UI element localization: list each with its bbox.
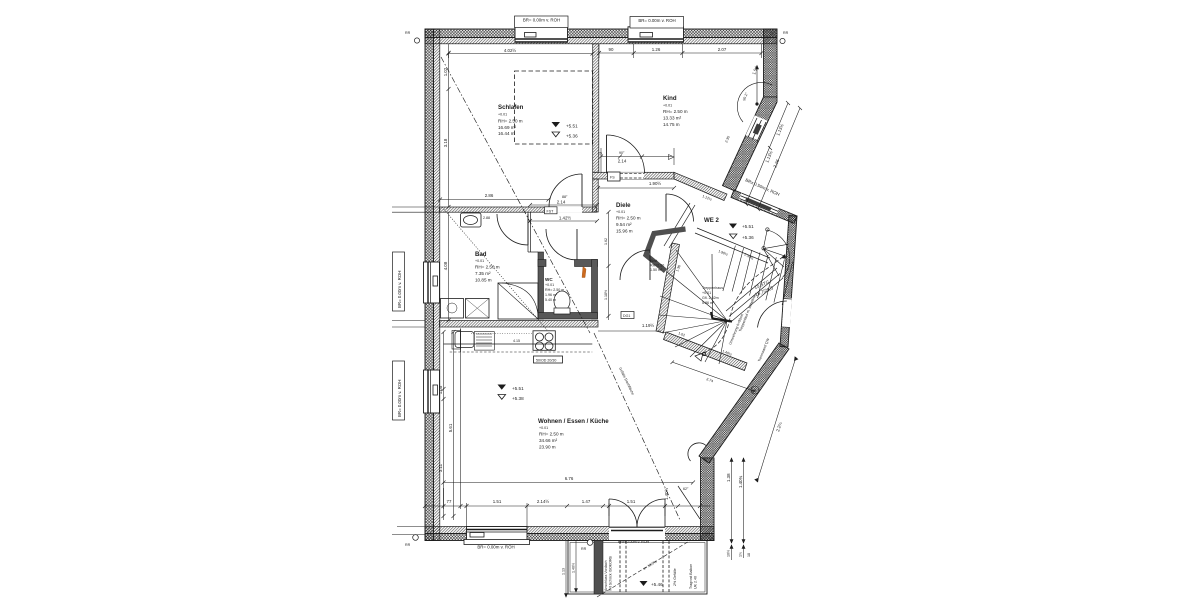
svg-text:7.35 m²: 7.35 m² <box>475 271 491 276</box>
svg-text:FST: FST <box>547 209 555 213</box>
svg-text:14.75 m: 14.75 m <box>663 122 680 127</box>
svg-text:6.76: 6.76 <box>565 476 574 481</box>
svg-text:+5.36: +5.36 <box>566 134 578 139</box>
svg-text:18: 18 <box>747 553 751 557</box>
svg-text:+5.51: +5.51 <box>566 124 578 129</box>
svg-text:BRH 0.00m v. ROH: BRH 0.00m v. ROH <box>618 540 649 544</box>
svg-text:5.86 m²: 5.86 m² <box>702 301 715 305</box>
svg-text:2.86: 2.86 <box>485 193 494 198</box>
svg-text:1.40½: 1.40½ <box>572 563 576 573</box>
svg-text:RR: RR <box>405 31 411 35</box>
svg-text:+5.36: +5.36 <box>742 235 754 240</box>
svg-text:+5.51: +5.51 <box>742 224 754 229</box>
svg-text:10.85 m: 10.85 m <box>475 278 492 283</box>
svg-text:RH= 2.50 m: RH= 2.50 m <box>545 288 564 292</box>
svg-text:Gfl. 2.62m: Gfl. 2.62m <box>702 296 719 300</box>
svg-text:50/OD 20/30: 50/OD 20/30 <box>536 359 556 363</box>
svg-text:RH= 2.50 m: RH= 2.50 m <box>475 265 500 270</box>
svg-text:RH=2.50: RH=2.50 <box>650 264 664 268</box>
svg-text:1.40¾: 1.40¾ <box>738 475 743 488</box>
svg-text:2% Gefälle: 2% Gefälle <box>673 568 677 586</box>
svg-text:1.51: 1.51 <box>493 499 502 504</box>
svg-text:mit Schöck ISOKORB: mit Schöck ISOKORB <box>609 555 613 591</box>
svg-text:RH= 2.50 m: RH= 2.50 m <box>663 109 688 114</box>
svg-text:4.15: 4.15 <box>513 339 520 343</box>
svg-text:1.13: 1.13 <box>562 568 566 575</box>
svg-text:25: 25 <box>598 152 602 156</box>
svg-text:RH= 2.50 m: RH= 2.50 m <box>498 119 523 124</box>
svg-text:Treppenhaus: Treppenhaus <box>702 286 723 290</box>
svg-text:2.14½: 2.14½ <box>537 499 550 504</box>
svg-text:4.02½: 4.02½ <box>504 48 517 53</box>
svg-text:WC: WC <box>545 277 553 282</box>
svg-text:+0.01: +0.01 <box>702 291 711 295</box>
svg-text:2.07: 2.07 <box>718 47 727 52</box>
svg-text:Tragrost Balkon: Tragrost Balkon <box>689 564 693 589</box>
svg-text:Schlafen: Schlafen <box>498 104 524 111</box>
svg-text:1.50 m²: 1.50 m² <box>650 268 663 272</box>
svg-text:5.40 m: 5.40 m <box>545 298 556 302</box>
svg-text:WE 2: WE 2 <box>704 217 720 224</box>
svg-text:BR= 0.00m v. ROH: BR= 0.00m v. ROH <box>638 18 675 23</box>
svg-text:RR: RR <box>581 547 587 551</box>
svg-text:1.90½: 1.90½ <box>649 181 662 186</box>
svg-text:1.62: 1.62 <box>604 238 608 245</box>
svg-text:1.96 m²: 1.96 m² <box>545 293 558 297</box>
svg-text:15.96 m: 15.96 m <box>616 229 633 234</box>
svg-text:1.26: 1.26 <box>652 47 661 52</box>
svg-text:+0.01: +0.01 <box>475 259 484 263</box>
svg-text:3.18: 3.18 <box>443 138 448 147</box>
svg-text:Anschluss Vordach: Anschluss Vordach <box>604 560 608 591</box>
svg-text:1.38: 1.38 <box>726 473 731 482</box>
svg-text:16.44 m: 16.44 m <box>498 131 515 136</box>
svg-text:FS: FS <box>610 176 615 180</box>
svg-text:RH= 2.50 m: RH= 2.50 m <box>616 216 641 221</box>
svg-text:1.47: 1.47 <box>582 499 591 504</box>
svg-text:Diele: Diele <box>616 202 631 209</box>
svg-text:BR= 0.00m v. ROH: BR= 0.00m v. ROH <box>397 271 402 308</box>
svg-text:96: 96 <box>752 389 756 393</box>
svg-text:1.19½: 1.19½ <box>642 323 655 328</box>
svg-text:2.14: 2.14 <box>557 200 566 205</box>
svg-text:DG1: DG1 <box>623 314 630 318</box>
svg-text:+0.01: +0.01 <box>545 283 554 287</box>
svg-text:34.66 m²: 34.66 m² <box>539 438 558 443</box>
svg-text:3.11: 3.11 <box>438 463 443 472</box>
svg-text:90°: 90° <box>619 151 625 155</box>
svg-text:UK 2.40: UK 2.40 <box>694 576 698 589</box>
svg-text:10½: 10½ <box>727 550 731 557</box>
svg-text:13.33 m²: 13.33 m² <box>663 116 682 121</box>
svg-text:RR: RR <box>405 543 411 547</box>
svg-text:+5.38: +5.38 <box>512 396 524 401</box>
svg-text:5.61: 5.61 <box>448 423 453 432</box>
svg-text:1.02: 1.02 <box>443 67 448 76</box>
svg-text:Kind: Kind <box>663 95 677 102</box>
svg-text:+0.01: +0.01 <box>539 426 548 430</box>
svg-text:16.69 m²: 16.69 m² <box>498 125 517 130</box>
svg-text:90: 90 <box>609 47 614 52</box>
svg-text:RR: RR <box>783 31 789 35</box>
svg-text:4.08: 4.08 <box>443 261 448 270</box>
svg-text:+0.01: +0.01 <box>616 210 625 214</box>
svg-text:77: 77 <box>447 499 452 504</box>
svg-text:BR= 0.00m v. ROH: BR= 0.00m v. ROH <box>523 18 560 23</box>
svg-text:Abst.: Abst. <box>650 259 658 263</box>
svg-text:RH= 2.50 m: RH= 2.50 m <box>539 432 564 437</box>
svg-text:1.05: 1.05 <box>438 385 443 394</box>
svg-text:88°: 88° <box>562 195 568 199</box>
svg-text:62°: 62° <box>683 487 689 491</box>
svg-text:BR= 0.00m v. ROH: BR= 0.00m v. ROH <box>477 545 514 550</box>
svg-text:1.40½: 1.40½ <box>664 487 669 500</box>
svg-text:1.42½: 1.42½ <box>559 216 572 221</box>
svg-text:Wohnen / Essen / Küche: Wohnen / Essen / Küche <box>538 418 609 425</box>
svg-text:+5.51: +5.51 <box>512 386 524 391</box>
svg-text:+0.01: +0.01 <box>498 113 507 117</box>
svg-text:+0.01: +0.01 <box>663 104 672 108</box>
svg-text:23.90 m: 23.90 m <box>539 445 556 450</box>
svg-text:9.54 m²: 9.54 m² <box>616 222 632 227</box>
svg-text:BR= 0.00m v. ROH: BR= 0.00m v. ROH <box>397 380 402 417</box>
svg-text:1.18½: 1.18½ <box>604 290 608 300</box>
svg-text:+5.46: +5.46 <box>651 582 663 587</box>
svg-text:2.14: 2.14 <box>618 159 627 164</box>
svg-text:1.51: 1.51 <box>627 499 636 504</box>
svg-text:2.88: 2.88 <box>483 216 490 220</box>
